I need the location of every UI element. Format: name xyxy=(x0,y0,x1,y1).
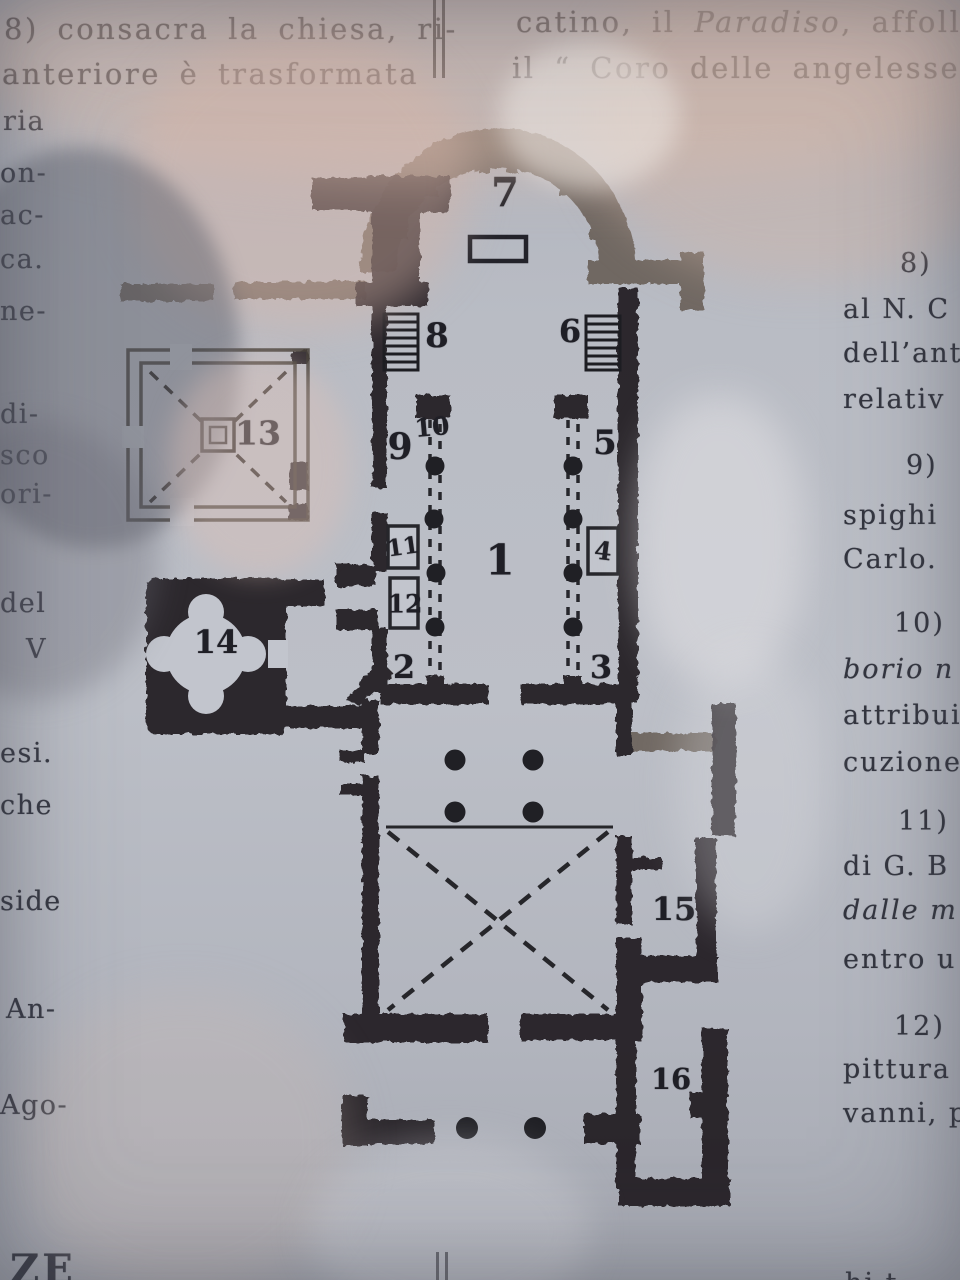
plan-label-10: 10 xyxy=(413,411,450,443)
church-floor-plan xyxy=(0,0,960,1280)
outer-right-wall xyxy=(712,704,736,836)
pier-5 xyxy=(554,395,588,419)
plan-label-14: 14 xyxy=(194,623,239,661)
apse-left-pier xyxy=(372,208,420,292)
plan-label-15: 15 xyxy=(652,890,697,928)
hall-vault xyxy=(386,827,613,1010)
plan-label-9: 9 xyxy=(387,426,412,468)
room-15-right-wall xyxy=(696,838,716,964)
portico-columns xyxy=(456,1117,546,1139)
plan-label-13: 13 xyxy=(235,414,281,453)
plan-label-3: 3 xyxy=(590,648,612,686)
stairs-6 xyxy=(586,316,620,370)
altar xyxy=(470,237,526,261)
hall-left-wall xyxy=(362,830,379,1015)
plan-label-4: 4 xyxy=(593,536,614,567)
plan-label-11: 11 xyxy=(385,531,420,562)
plan-label-1: 1 xyxy=(485,536,514,585)
plan-label-8: 8 xyxy=(425,316,449,356)
plan-label-6: 6 xyxy=(559,312,581,350)
plan-label-2: 2 xyxy=(393,648,415,686)
plan-label-7: 7 xyxy=(491,170,519,217)
plan-label-12: 12 xyxy=(388,590,423,619)
photo-of-book-page: 8) consacra la chiesa, ri- anteriore è t… xyxy=(0,0,960,1280)
vestibule-columns xyxy=(445,750,544,823)
nave-bottom-wall xyxy=(380,684,488,704)
stairs-8 xyxy=(384,314,418,370)
plan-label-16: 16 xyxy=(651,1062,691,1096)
plan-label-5: 5 xyxy=(593,423,617,463)
